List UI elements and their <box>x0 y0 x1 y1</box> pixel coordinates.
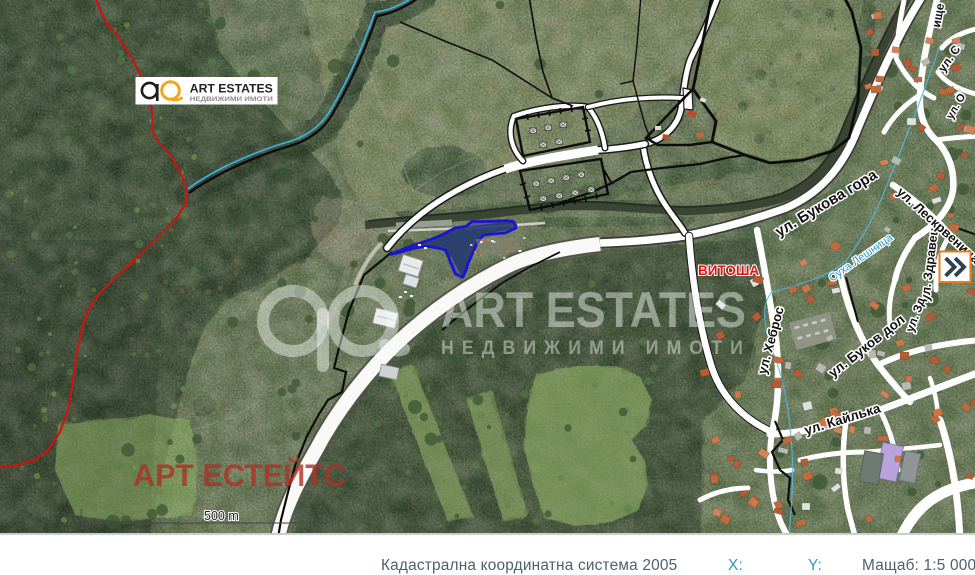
svg-text:500 m: 500 m <box>204 509 239 523</box>
svg-text:ART ESTATES: ART ESTATES <box>190 82 273 96</box>
svg-text:НЕДВИЖИМИ ИМОТИ: НЕДВИЖИМИ ИМОТИ <box>190 96 274 103</box>
svg-text:АРТ ЕСТЕЙТС: АРТ ЕСТЕЙТС <box>133 457 346 493</box>
svg-text:ВИТОША: ВИТОША <box>698 263 759 278</box>
svg-text:НЕДВИЖИМИ ИМОТИ: НЕДВИЖИМИ ИМОТИ <box>441 337 751 359</box>
svg-text:ART ESTATES: ART ESTATES <box>441 282 746 338</box>
